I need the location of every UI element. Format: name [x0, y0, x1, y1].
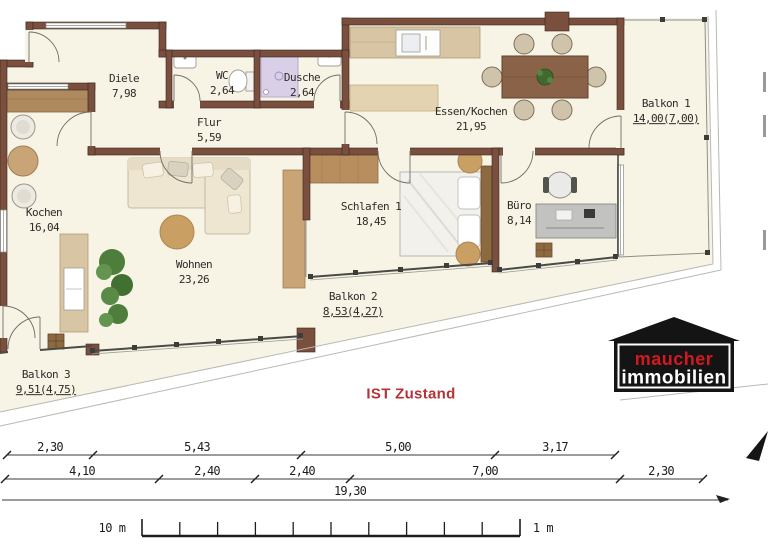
dim-row1-2: 5,00 [385, 441, 411, 453]
dim-row2-4: 2,30 [648, 465, 674, 477]
scale-left-label: 10 m [99, 522, 126, 534]
room-name: Balkon 1 [642, 97, 690, 110]
room-name: Büro [507, 199, 531, 212]
room-label-wc: WC 2,64 [210, 69, 234, 99]
dimension-ticks [1, 451, 707, 483]
room-label-schlafen-1: Schlafen 1 18,45 [341, 200, 401, 230]
room-area: 5,59 [197, 131, 221, 146]
room-label-flur: Flur 5,59 [197, 116, 221, 146]
room-label-balkon-1: Balkon 1 14,00(7,00) [633, 97, 699, 127]
room-area: 2,64 [210, 84, 234, 99]
room-area: 9,51(4,75) [16, 383, 76, 398]
room-label-kochen: Kochen 16,04 [26, 206, 62, 236]
dim-row2-1: 2,40 [194, 465, 220, 477]
dim-row2-2: 2,40 [289, 465, 315, 477]
scale-bar [142, 519, 520, 536]
dim-total: 19,30 [334, 485, 366, 497]
northeast-arrow-icon [746, 431, 768, 461]
edge-dimension-marks [763, 72, 766, 250]
room-label-balkon-2: Balkon 2 8,53(4,27) [323, 290, 383, 320]
logo-text-immobilien: immobilien [621, 369, 726, 388]
room-name: Schlafen 1 [341, 200, 401, 213]
dim-row1-0: 2,30 [37, 441, 63, 453]
dim-row1-1: 5,43 [184, 441, 210, 453]
room-label-wohnen: Wohnen 23,26 [176, 258, 212, 288]
rug-schlafen-2 [456, 242, 480, 266]
room-name: WC [216, 69, 228, 82]
floorplan-page: Diele 7,98 WC 2,64 Dusche 2,64 Flur 5,59… [0, 0, 768, 560]
room-area: 16,04 [26, 221, 62, 236]
room-name: Dusche [284, 71, 320, 84]
room-area: 7,98 [109, 87, 139, 102]
status-label: IST Zustand [366, 387, 455, 402]
room-name: Wohnen [176, 258, 212, 271]
room-name: Flur [197, 116, 221, 129]
room-area: 2,64 [284, 86, 320, 101]
room-label-buero: Büro 8,14 [507, 199, 531, 229]
room-label-diele: Diele 7,98 [109, 72, 139, 102]
room-label-essen-kochen: Essen/Kochen 21,95 [435, 105, 507, 135]
room-label-balkon-3: Balkon 3 9,51(4,75) [16, 368, 76, 398]
sideboard-wohnen [283, 170, 305, 288]
rug-wohnen [160, 215, 194, 249]
dim-row2-0: 4,10 [69, 465, 95, 477]
room-area: 8,14 [507, 214, 531, 229]
wardrobe-schlafen [308, 152, 378, 183]
logo-text-maucher: maucher [635, 350, 714, 368]
room-name: Essen/Kochen [435, 105, 507, 118]
room-name: Kochen [26, 206, 62, 219]
room-area: 18,45 [341, 215, 401, 230]
room-area: 21,95 [435, 120, 507, 135]
room-name: Diele [109, 72, 139, 85]
room-area: 8,53(4,27) [323, 305, 383, 320]
room-area: 14,00(7,00) [633, 112, 699, 127]
dimension-arrowhead [716, 495, 730, 503]
dim-row1-3: 3,17 [542, 441, 568, 453]
room-label-dusche: Dusche 2,64 [284, 71, 320, 101]
room-area: 23,26 [176, 273, 212, 288]
scale-right-label: 1 m [533, 522, 553, 534]
room-name: Balkon 3 [22, 368, 70, 381]
room-name: Balkon 2 [329, 290, 377, 303]
dim-row2-3: 7,00 [472, 465, 498, 477]
